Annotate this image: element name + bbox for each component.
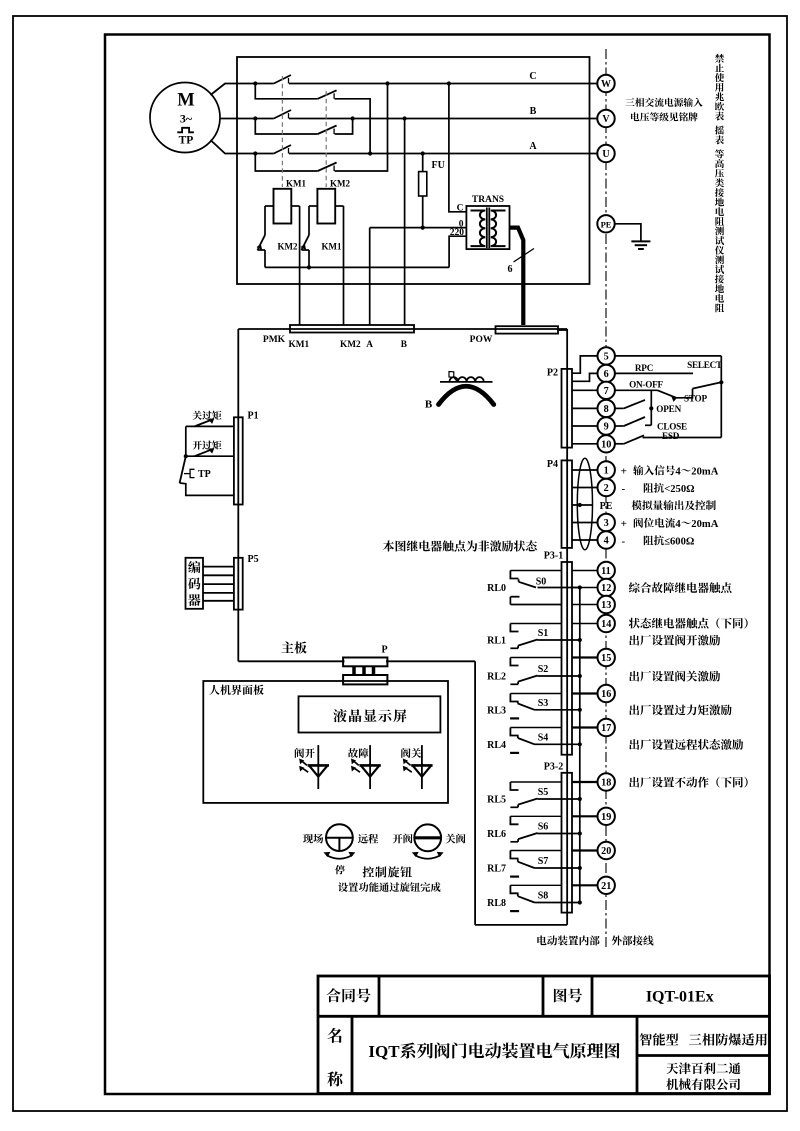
svg-text:RL8: RL8	[487, 898, 506, 909]
svg-text:C: C	[457, 204, 464, 214]
svg-text:P3-2: P3-2	[544, 762, 563, 773]
svg-text:U: U	[602, 149, 609, 160]
svg-text:TP: TP	[179, 135, 194, 147]
svg-text:PMK: PMK	[263, 335, 286, 345]
svg-text:19: 19	[601, 812, 611, 823]
svg-text:KM2: KM2	[340, 340, 361, 350]
svg-text:4: 4	[604, 536, 609, 547]
svg-text:S0: S0	[536, 577, 547, 588]
svg-text:S8: S8	[538, 891, 549, 902]
svg-text:RL5: RL5	[487, 795, 506, 806]
svg-text:P2: P2	[547, 368, 558, 379]
svg-text:6: 6	[604, 369, 609, 380]
svg-text:TRANS: TRANS	[472, 195, 504, 205]
svg-text:8: 8	[604, 404, 609, 415]
svg-text:RL2: RL2	[487, 672, 506, 683]
svg-text:PE: PE	[601, 219, 612, 229]
svg-text:B: B	[401, 340, 407, 350]
svg-text:P4: P4	[547, 459, 558, 470]
svg-text:S7: S7	[538, 856, 549, 867]
svg-text:A: A	[366, 340, 373, 350]
svg-text:17: 17	[601, 723, 611, 734]
svg-text:20: 20	[601, 846, 611, 857]
svg-text:+: +	[621, 465, 627, 477]
svg-text:KM2: KM2	[278, 242, 298, 252]
svg-text:<250Ω: <250Ω	[664, 484, 695, 495]
svg-text:V: V	[602, 114, 610, 125]
svg-text:20mA: 20mA	[691, 519, 718, 530]
svg-text:OPEN: OPEN	[656, 404, 681, 414]
svg-text:14: 14	[601, 619, 611, 630]
svg-text:18: 18	[601, 778, 611, 789]
svg-text:ESD: ESD	[662, 431, 680, 441]
svg-text:KM2: KM2	[330, 179, 350, 189]
svg-text:+: +	[621, 518, 627, 530]
svg-text:IQT: IQT	[368, 1042, 400, 1061]
svg-text:-: -	[622, 535, 626, 547]
svg-text:ON-OFF: ON-OFF	[629, 379, 663, 389]
svg-text:KM1: KM1	[322, 242, 342, 252]
svg-text:P3-1: P3-1	[544, 551, 563, 562]
svg-text:3~: 3~	[180, 112, 193, 126]
svg-text:4: 4	[675, 519, 681, 530]
svg-text:P5: P5	[248, 554, 259, 565]
svg-text:B: B	[530, 106, 537, 117]
svg-text:PE: PE	[600, 501, 613, 512]
svg-text:STOP: STOP	[684, 394, 707, 404]
svg-text:-: -	[622, 483, 626, 495]
svg-text:4: 4	[675, 466, 681, 477]
svg-text:9: 9	[604, 422, 609, 433]
svg-text:P1: P1	[248, 411, 259, 422]
svg-text:RL4: RL4	[487, 740, 506, 751]
svg-text:RL6: RL6	[487, 829, 506, 840]
svg-text:13: 13	[601, 600, 611, 611]
svg-text:S2: S2	[538, 664, 549, 675]
svg-text:FU: FU	[432, 160, 445, 171]
svg-text:RPC: RPC	[635, 363, 653, 373]
svg-text:220: 220	[450, 228, 465, 238]
svg-text:10: 10	[601, 439, 611, 450]
svg-text:11: 11	[601, 566, 611, 577]
svg-text:RL7: RL7	[487, 864, 506, 875]
svg-text:12: 12	[601, 583, 611, 594]
svg-text:≤600Ω: ≤600Ω	[664, 536, 695, 547]
svg-text:P: P	[381, 645, 387, 656]
svg-text:S6: S6	[538, 822, 549, 833]
svg-text:S5: S5	[538, 787, 549, 798]
svg-text:S4: S4	[538, 732, 549, 743]
svg-text:TP: TP	[198, 469, 211, 480]
svg-text:CLOSE: CLOSE	[657, 421, 687, 431]
svg-text:3: 3	[604, 518, 609, 529]
svg-text:S3: S3	[538, 698, 549, 709]
svg-text:RL1: RL1	[487, 636, 506, 647]
svg-text:C: C	[529, 71, 536, 82]
svg-text:7: 7	[604, 386, 609, 397]
svg-text:A: A	[529, 141, 537, 152]
svg-text:15: 15	[601, 653, 611, 664]
svg-text:2: 2	[604, 483, 609, 494]
svg-text:16: 16	[601, 689, 611, 700]
svg-text:21: 21	[601, 881, 611, 892]
svg-text:W: W	[601, 79, 611, 90]
svg-text:6: 6	[508, 264, 513, 275]
svg-text:KM1: KM1	[286, 179, 306, 189]
svg-text:B: B	[425, 399, 433, 411]
svg-text:IQT-01Ex: IQT-01Ex	[646, 989, 714, 1006]
svg-text:20mA: 20mA	[691, 466, 718, 477]
svg-text:5: 5	[604, 352, 609, 363]
svg-text:S1: S1	[538, 628, 549, 639]
svg-text:1: 1	[604, 466, 609, 477]
svg-text:SELECT: SELECT	[687, 360, 722, 370]
svg-text:POW: POW	[470, 335, 493, 345]
svg-text:M: M	[177, 91, 194, 111]
svg-text:RL3: RL3	[487, 705, 506, 716]
svg-text:KM1: KM1	[288, 340, 309, 350]
svg-text:RL0: RL0	[487, 583, 506, 594]
